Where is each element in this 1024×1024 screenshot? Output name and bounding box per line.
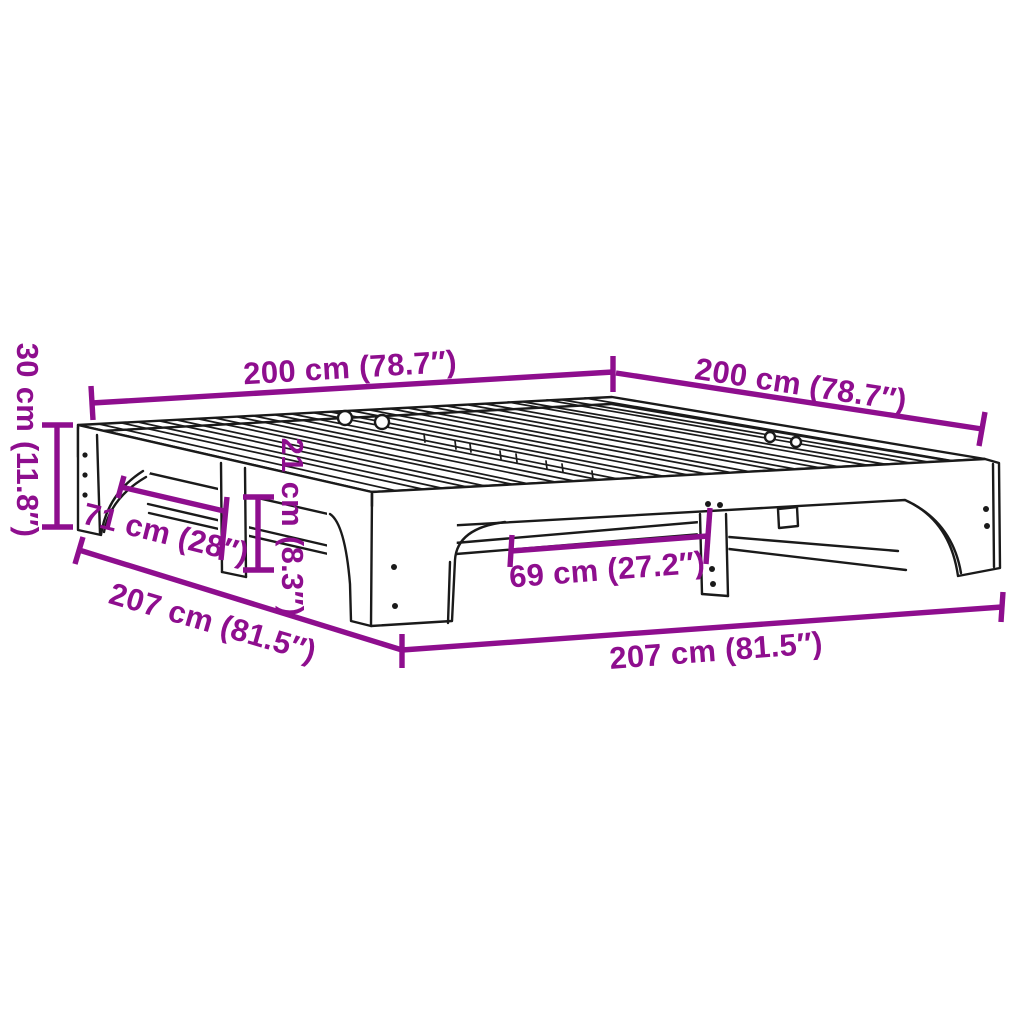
latch-hook-icon	[375, 415, 389, 429]
latch-hook-icon	[765, 432, 775, 442]
dim-label-top-right-depth: 200 cm (78.7″)	[693, 351, 910, 418]
latch-hook-icon	[338, 411, 352, 425]
latch-hook-icon	[791, 437, 801, 447]
dim-label-clearance: 21 cm (8.3″)	[275, 438, 310, 617]
dimension-diagram-svg: 200 cm (78.7″) 200 cm (78.7″) 30 cm (11.…	[0, 0, 1024, 1024]
dimension-height	[42, 425, 73, 527]
corner-leg-right-edge	[993, 464, 994, 567]
product-dimension-diagram: 200 cm (78.7″) 200 cm (78.7″) 30 cm (11.…	[0, 0, 1024, 1024]
dim-label-height: 30 cm (11.8″)	[10, 343, 45, 538]
dim-label-arch-span-front: 69 cm (27.2″)	[508, 545, 706, 595]
